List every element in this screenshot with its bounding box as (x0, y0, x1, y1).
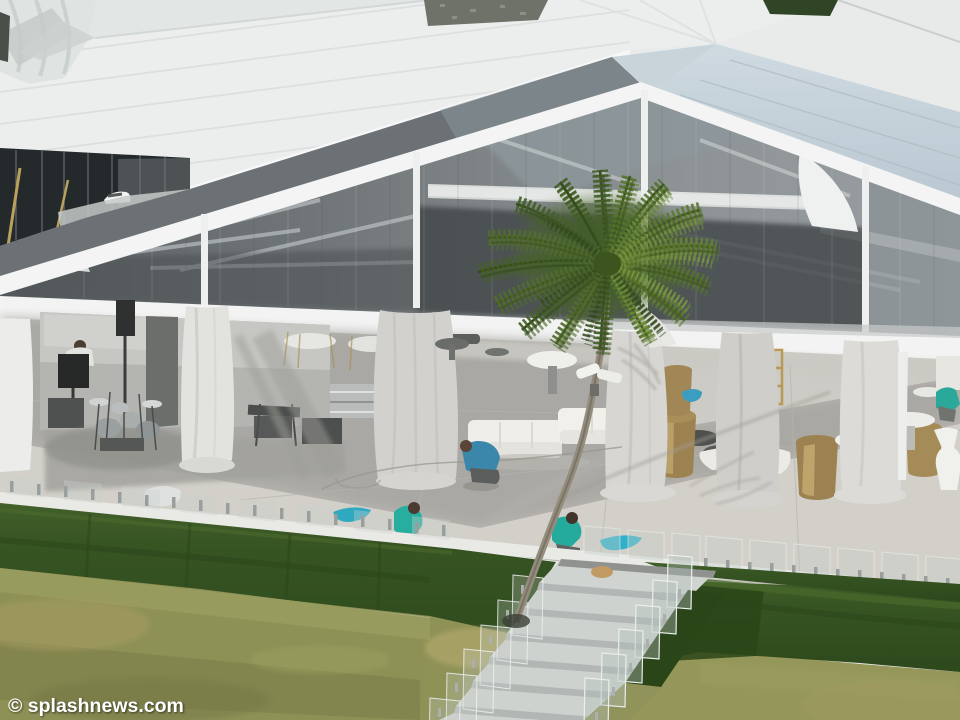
svg-text:© splashnews.com: © splashnews.com (8, 695, 184, 717)
